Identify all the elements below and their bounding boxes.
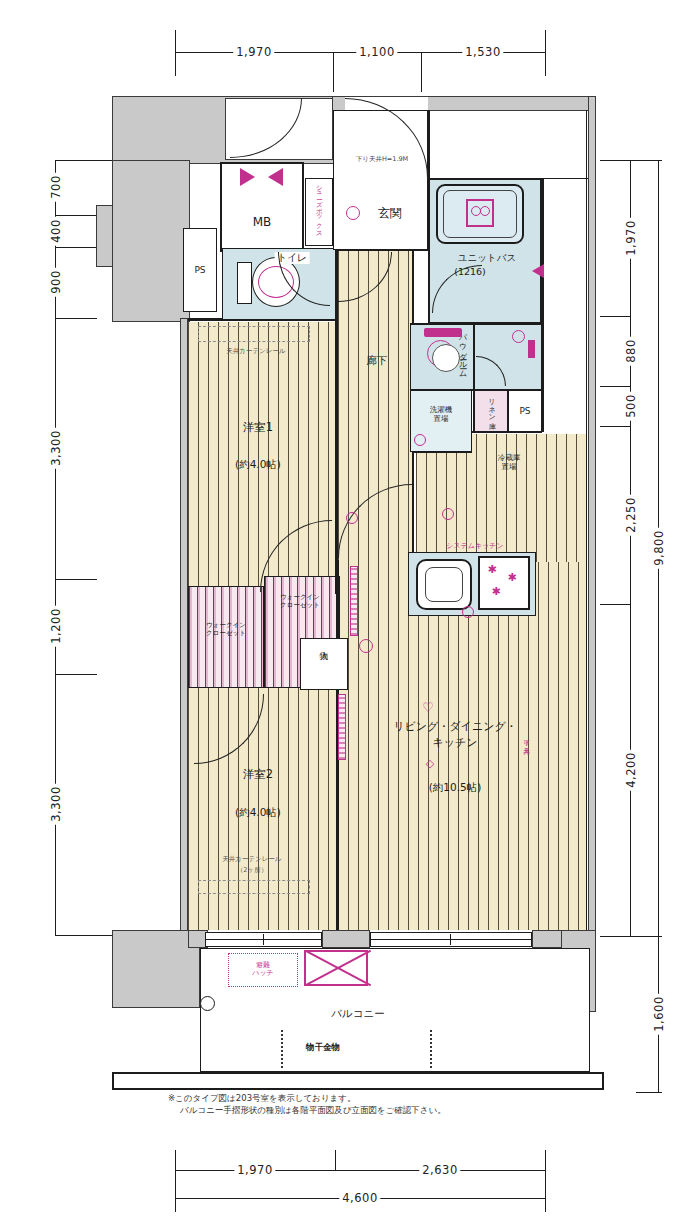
label-wic1-line2: クローゼット [206,630,246,638]
kitchen-sink-inner [425,567,463,602]
washstand-fixture-icon [512,330,525,343]
dim-bottom-tick-3 [545,1150,546,1212]
dim-right-tick-6 [600,936,662,937]
handrail-line-2 [112,1088,604,1090]
label-wic1: ウォークイン クローゼット [206,622,246,638]
toilet-tank [237,262,252,304]
dim-right-value-3: 500 [624,391,638,420]
note-line-1: ※このタイプ図は203号室を表示しております。 [168,1093,355,1103]
wall-left-column [112,160,190,322]
dim-left-value-6: 3,300 [49,783,63,824]
dim-top-tick-4 [545,30,546,76]
mb-valve-icon-2 [268,168,283,186]
label-unit-bath: ユニットバス [458,252,516,263]
powder-bowl-icon [432,344,460,372]
handrail-line-1 [112,1072,604,1074]
dim-right-tick-5 [600,604,630,605]
label-bedroom1-size: (約4.0帖) [235,458,281,471]
label-kitchen: システムキッチン [446,542,503,550]
wall-bottom-seg-2 [322,930,370,948]
label-wic2: ウォークイン クローゼット [280,594,320,610]
wall-right [588,96,596,950]
dim-right-inner-line [630,160,631,936]
label-hatch: 避難 ハッチ [252,962,274,977]
label-ps-left: PS [194,265,205,276]
label-washer: 洗濯機 置場 [430,405,453,423]
dim-right-value-2: 880 [624,336,638,365]
dim-left-value-4: 3,300 [49,427,63,468]
dim-right-tick-7 [636,1092,662,1093]
dim-left-tick-3 [55,247,97,248]
dim-right-value-1: 1,970 [624,217,638,258]
label-fridge-line2: 置場 [498,462,521,471]
dim-left-tick-5 [55,579,97,580]
dim-top-tick-2 [333,52,334,92]
label-fridge-line1: 冷蔵庫 [498,453,521,462]
label-storage: 物入 [320,644,329,686]
powder-mirror-icon [424,328,462,337]
laundry-pole-mark-2 [430,1030,432,1068]
window-bedroom2-mullion [263,934,264,945]
label-soffit: 下り天井 [523,735,530,775]
wall-bottom-left-block [112,930,200,1008]
pocket-door-1 [350,566,358,636]
stove-burner-icon-1: ✱ [487,563,496,576]
label-curtain-rail-2-note: （2ヶ所） [237,867,267,875]
dim-left-value-3: 900 [49,267,63,296]
label-mb: MB [253,215,272,229]
label-corridor: 廊下 [367,354,388,367]
label-ps-right: PS [519,406,530,417]
window-ldk-mullion [450,934,451,945]
label-wic2-line2: クローゼット [280,602,320,610]
entrance-mark-icon [346,206,360,220]
laundry-pole-mark-1 [281,1030,283,1068]
label-fridge: 冷蔵庫 置場 [498,453,521,471]
floor-plan: 1,970 1,100 1,530 700 400 900 3,300 1,20… [0,0,700,1220]
dim-right-value-5: 4,200 [624,749,638,790]
stove-burner-icon-3: ✱ [491,585,500,598]
dim-right-total: 9,800 [652,527,666,568]
label-laundry: 物干金物 [306,1042,340,1052]
balcony-drain [200,996,215,1011]
dim-top-value-3: 1,530 [462,45,503,59]
label-bedroom2: 洋室2 [243,768,273,782]
bath-faucet-dot-2 [480,206,490,216]
label-washer-line2: 置場 [430,414,453,423]
dim-top-tick-3 [421,52,422,92]
outlet-mark-3 [442,508,454,520]
washer-mark-icon [414,434,426,446]
dim-right-tick-1 [600,160,662,161]
dim-bottom-line-1 [175,1170,545,1171]
label-shoes-box: シューズボックス [316,181,323,245]
label-entrance: 玄関 [378,206,402,220]
label-ldk-line1: リビング・ダイニング・ [393,720,516,733]
kitchen-faucet-icon [462,606,474,618]
ldk-diamond-icon: ◇ [426,757,434,770]
label-hatch-line2: ハッチ [252,970,274,978]
outlet-mark-1 [346,512,358,524]
curtain-box-bedroom1 [198,326,310,342]
washstand-bar-icon [528,340,535,358]
dim-left-value-5: 1,200 [49,605,63,646]
kitchen-stove [478,556,530,610]
curtain-box-bedroom2 [198,880,310,894]
dim-right-outer-line [658,160,659,1092]
dim-top-value-2: 1,100 [356,45,397,59]
ldk-heart-icon: ♡ [422,700,434,716]
dim-right-tick-3 [600,386,630,387]
dim-right-tick-2 [600,316,630,317]
window-ldk-sash [371,939,531,940]
hatch-x-box [304,950,368,986]
label-ldk-size: (約10.5帖) [429,781,482,794]
label-washer-line1: 洗濯機 [430,405,453,414]
dim-top-value-1: 1,970 [233,45,274,59]
stove-burner-icon-2: ✱ [507,571,516,584]
dim-bottom-total: 4,600 [339,1191,380,1205]
wall-left-protrusion [96,205,113,267]
dim-left-tick-6 [55,674,97,675]
dim-right-value-4: 2,250 [624,494,638,535]
dim-right-tick-4 [600,426,630,427]
dim-top-tick-1 [175,30,176,76]
label-linen: リネン庫 [487,393,494,431]
label-powder: パウダールーム [458,328,466,386]
handrail-end-left [112,1072,114,1088]
dim-bottom-tick-1 [175,1150,176,1212]
dim-left-tick-4 [55,318,97,319]
ub-door-mark-icon [532,264,544,278]
dim-bottom-value-1: 1,970 [234,1163,275,1177]
label-bedroom1: 洋室1 [243,421,273,435]
wall-bottom-seg-3 [532,930,562,948]
label-curtain-rail-2: 天井カーテンレール [222,856,281,864]
room-mb [220,162,304,252]
dim-bottom-tick-2 [335,1150,336,1170]
dim-left-value-2: 400 [49,216,63,245]
label-ldk-line2: キッチン [432,736,477,749]
label-bedroom2-size: (約4.0帖) [235,806,281,819]
wall-left-unit [180,318,188,935]
dim-right-balcony: 1,600 [652,993,666,1034]
handrail-end-right [602,1072,604,1088]
pocket-door-2 [338,694,346,760]
label-balcony: バルコニー [331,1007,384,1020]
outlet-mark-2 [359,639,373,653]
dim-left-value-1: 700 [49,172,63,201]
wall-face-right [586,110,587,930]
mb-valve-icon [240,168,255,186]
dim-bottom-value-2: 2,630 [419,1163,460,1177]
label-curtain-rail-1: 天井カーテンレール [226,348,285,356]
note-line-2: バルコニー手摺形状の種別は各階平面図及び立面図をご確認下さい。 [180,1105,446,1115]
